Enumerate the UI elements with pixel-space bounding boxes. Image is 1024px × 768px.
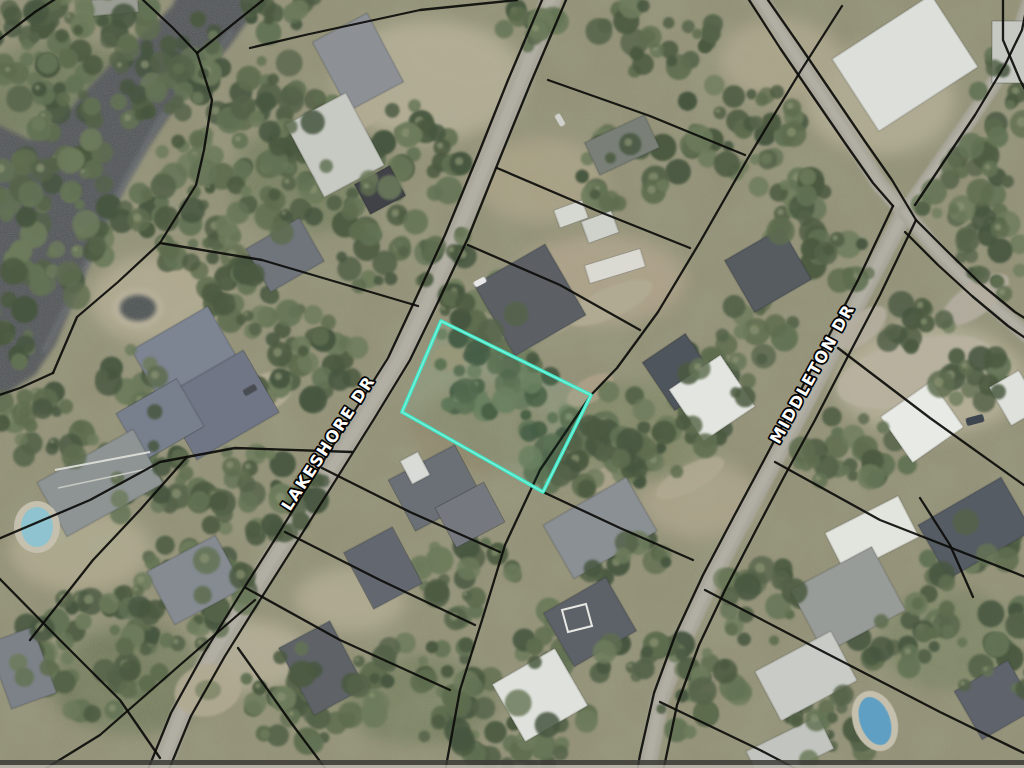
imagery-edge-strips: [0, 760, 1024, 768]
aerial-imagery: LAKESHORE DR MIDDLETON DR: [0, 0, 1024, 768]
map-viewport[interactable]: LAKESHORE DR MIDDLETON DR: [0, 0, 1024, 768]
